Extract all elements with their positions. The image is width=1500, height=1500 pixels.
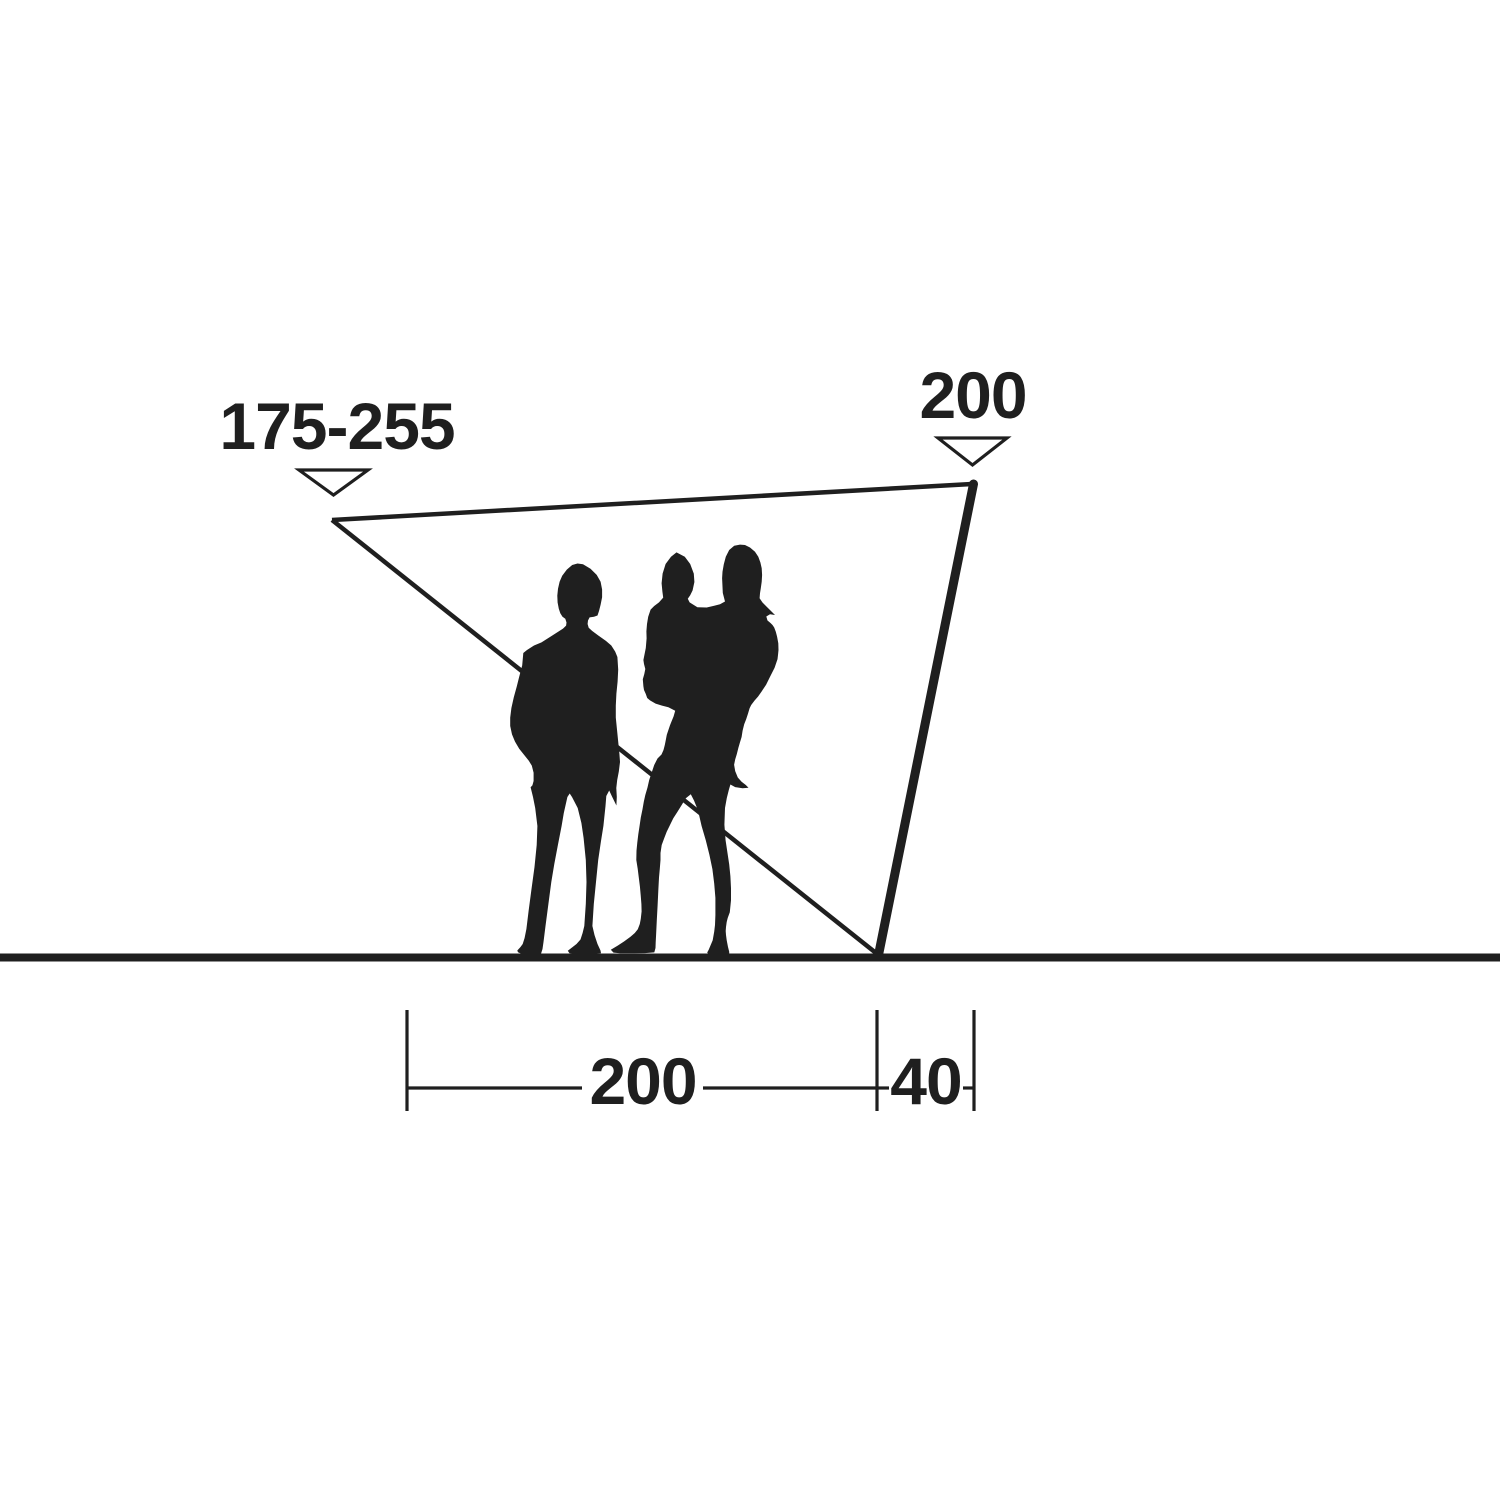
svg-text:40: 40 [890, 1044, 961, 1118]
svg-text:175-255: 175-255 [219, 389, 454, 463]
svg-text:200: 200 [919, 358, 1026, 432]
svg-text:200: 200 [589, 1044, 696, 1118]
